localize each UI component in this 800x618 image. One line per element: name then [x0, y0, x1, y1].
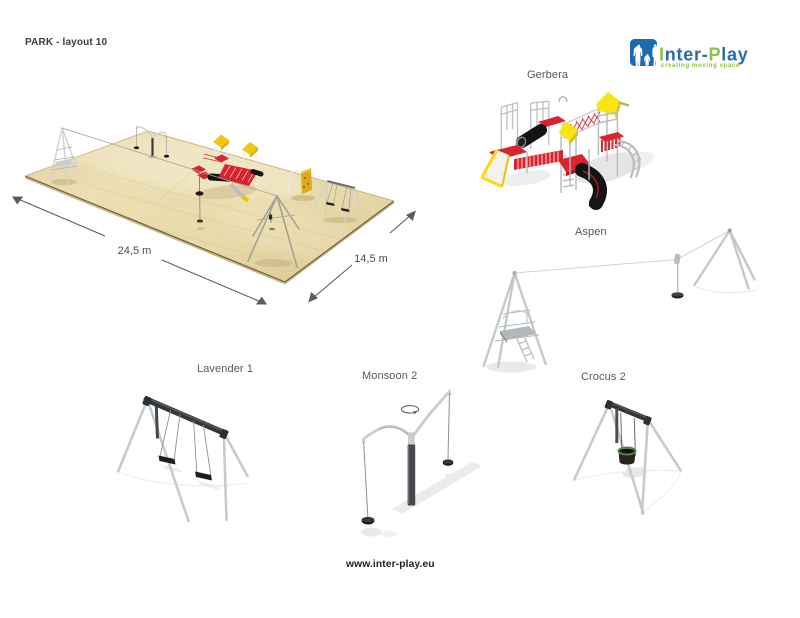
svg-text:creating moving space: creating moving space — [661, 62, 740, 69]
svg-text:14,5 m: 14,5 m — [354, 253, 388, 265]
svg-text:24,5 m: 24,5 m — [118, 245, 152, 257]
